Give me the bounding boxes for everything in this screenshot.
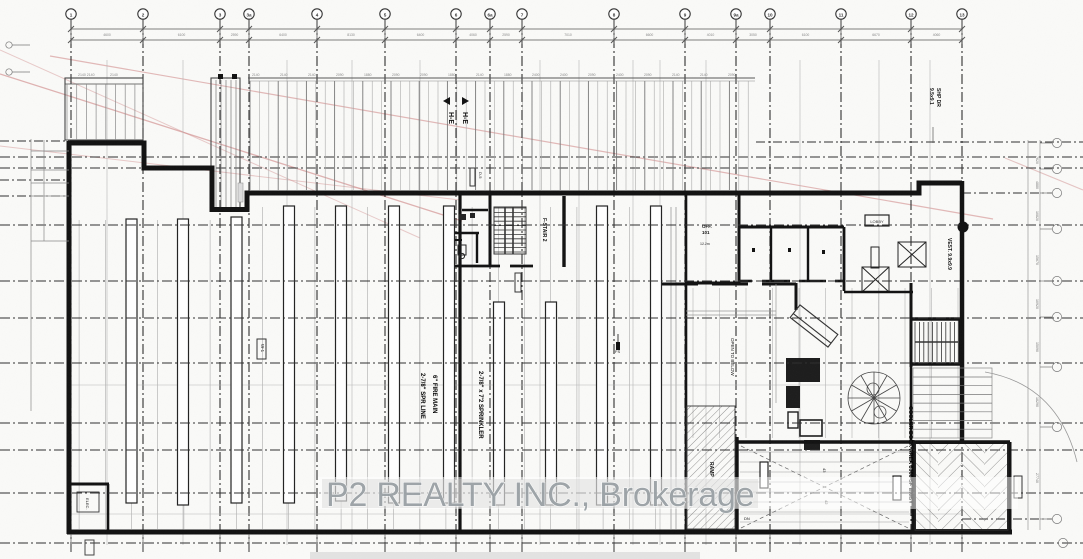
svg-text:P2 REALTY INC., Brokerage: P2 REALTY INC., Brokerage — [326, 476, 754, 514]
